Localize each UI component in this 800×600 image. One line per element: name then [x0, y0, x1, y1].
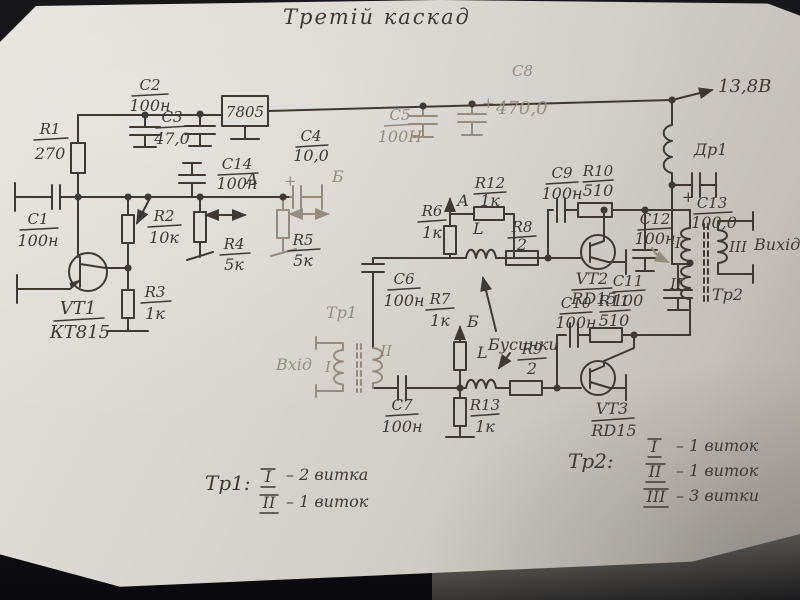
- label-r12: R12 1к: [474, 174, 506, 210]
- r5-ref: R5: [292, 231, 314, 249]
- legend-tr1: Тр1: I – 2 витка II – 1 виток: [205, 465, 369, 513]
- tr2-winding1-label: I: [674, 234, 682, 252]
- point-a-label-r4: А: [245, 169, 258, 188]
- c8-value: 470,0: [495, 98, 548, 119]
- resistor-r3: [108, 268, 148, 331]
- legend-tr1-row1-winding: I: [264, 467, 272, 486]
- transistor-vt2: [590, 210, 626, 274]
- legend-tr1-title: Тр1:: [205, 471, 251, 495]
- legend-tr1-row2-turns: – 1 виток: [286, 492, 369, 511]
- capacitor-c14: [179, 163, 205, 197]
- tr1-winding2-label: II: [379, 342, 393, 360]
- c8-plus-sign: +: [482, 94, 495, 112]
- r13-value: 1к: [475, 417, 495, 436]
- potentiometer-r2: [122, 197, 134, 268]
- label-r7: R7 1к: [426, 290, 454, 330]
- legend-tr2: Тр2: I – 1 виток II – 1 виток III – 3 ви…: [568, 436, 759, 507]
- schematic-title: Третій каскад: [283, 5, 471, 29]
- legend-tr2-row2-winding: II: [648, 462, 662, 481]
- label-c12: C12 100н: [634, 210, 675, 248]
- c8-ref: C8: [512, 62, 533, 80]
- label-c4: C4 10,0: [293, 127, 329, 165]
- label-c13: C13 100,0: [691, 194, 737, 232]
- r4-value: 5к: [224, 255, 244, 274]
- r2-value: 10к: [149, 228, 179, 247]
- label-c5: C5 100Н: [378, 106, 424, 146]
- c9-value: 100н: [541, 184, 582, 203]
- r13-ref: R13: [469, 396, 500, 414]
- regulator-7805-label: 7805: [226, 103, 264, 121]
- c2-ref: C2: [139, 76, 160, 94]
- beads-callout-arrow-lower: [499, 353, 510, 368]
- capacitor-c1: [15, 183, 78, 211]
- c6-ref: C6: [393, 270, 414, 288]
- resistor-r7: [454, 342, 466, 388]
- output-label: Вихід: [753, 235, 800, 254]
- r3-ref: R3: [144, 283, 166, 301]
- potentiometer-r4: [187, 197, 213, 260]
- r6-ref: R6: [421, 202, 443, 220]
- legend-tr2-row1-turns: – 1 виток: [676, 436, 759, 455]
- c5-ref: C5: [389, 106, 410, 124]
- label-c9: C9 100н: [541, 164, 582, 203]
- label-r13: R13 1к: [469, 396, 500, 436]
- legend-tr1-row1-turns: – 2 витка: [286, 465, 368, 484]
- c10-value: 100н: [555, 313, 596, 332]
- c3-value: 47,0: [153, 129, 190, 148]
- beads-callout-arrow-upper: [483, 278, 496, 331]
- label-c7: C7 100н: [381, 396, 422, 436]
- label-r8: R8 2: [508, 218, 536, 254]
- capacitor-c6: [362, 258, 384, 272]
- potentiometer-r2-wiper-arrow: [137, 200, 149, 223]
- r8-value: 2: [516, 235, 527, 254]
- paper-sheet: 7805 13,8В Др1: [0, 0, 800, 600]
- label-vt3: VT3 RD15: [590, 399, 636, 440]
- choke-dr1-label: Др1: [693, 140, 727, 159]
- label-vt1: VT1 КТ815: [49, 298, 110, 343]
- tr1-winding1-label: I: [324, 358, 332, 376]
- legend-tr2-row3-turns: – 3 витки: [676, 486, 759, 505]
- supply-voltage-label: 13,8В: [718, 76, 771, 97]
- c4-plus-sign: +: [284, 172, 297, 190]
- label-r11: R11 510: [598, 292, 630, 330]
- r9-value: 2: [526, 359, 537, 378]
- label-r4: R4 5к: [220, 235, 250, 274]
- ferrite-bead-lower: [466, 380, 496, 388]
- c12-value: 100н: [634, 229, 675, 248]
- c4-ref: C4: [300, 127, 321, 145]
- c7-value: 100н: [381, 417, 422, 436]
- r8-ref: R8: [511, 218, 533, 236]
- bead-l-label-upper: L: [472, 219, 484, 238]
- legend-tr2-row3-winding: III: [646, 487, 667, 506]
- supply-arrow: [672, 90, 712, 100]
- resistor-r1: [71, 115, 85, 197]
- transformer-tr1-core: [357, 344, 361, 392]
- c13-value: 100,0: [691, 213, 737, 232]
- r2-ref: R2: [153, 207, 175, 225]
- tr2-winding3-label: III: [728, 238, 748, 256]
- point-a-label-r6: А: [456, 191, 469, 210]
- c4-value: 10,0: [293, 146, 329, 165]
- c9-ref: C9: [551, 164, 572, 182]
- capacitor-c12-pointer-arrow: [652, 248, 668, 262]
- vt2-ref: VT2: [576, 269, 608, 288]
- r10-value: 510: [583, 181, 614, 200]
- point-b-label-r7: Б: [466, 312, 479, 331]
- label-r1: R1 270: [34, 120, 68, 163]
- vt1-ref: VT1: [60, 298, 96, 319]
- r5-value: 5к: [293, 251, 313, 270]
- beads-label: Бусинки: [487, 335, 559, 354]
- c10-ref: C10: [561, 294, 592, 312]
- r3-value: 1к: [145, 304, 165, 323]
- choke-dr1: [664, 100, 672, 185]
- r4-ref: R4: [223, 235, 245, 253]
- label-r5: R5 5к: [288, 231, 320, 270]
- tr2-winding2-label: II: [669, 275, 683, 293]
- legend-tr2-row2-turns: – 1 виток: [676, 461, 759, 480]
- label-c1: C1 100н: [17, 210, 58, 250]
- label-r10: R10 510: [582, 162, 614, 200]
- c13-ref: C13: [697, 194, 728, 212]
- c1-value: 100н: [17, 231, 58, 250]
- ferrite-bead-upper: [466, 250, 496, 258]
- legend-tr1-row2-winding: II: [262, 493, 276, 512]
- r10-ref: R10: [582, 162, 614, 180]
- point-b-label-r5: Б: [331, 167, 344, 186]
- vt3-ref: VT3: [596, 399, 628, 418]
- r12-ref: R12: [474, 174, 505, 192]
- photo-of-schematic: 7805 13,8В Др1: [0, 0, 800, 600]
- r1-value: 270: [34, 144, 66, 163]
- legend-tr2-title: Тр2:: [568, 449, 614, 473]
- c6-value: 100н: [383, 291, 424, 310]
- vt1-value: КТ815: [49, 322, 110, 343]
- r11-ref: R11: [598, 292, 629, 310]
- circuit-schematic: 7805 13,8В Др1: [0, 0, 800, 600]
- r1-ref: R1: [39, 120, 61, 138]
- r6-value: 1к: [422, 223, 442, 242]
- c7-ref: C7: [391, 396, 412, 414]
- input-label: Вхід: [275, 355, 312, 374]
- c12-ref: C12: [640, 210, 671, 228]
- c3-ref: C3: [161, 108, 182, 126]
- label-c6: C6 100н: [383, 270, 424, 310]
- transistor-vt2-body: [581, 235, 615, 269]
- vt3-value: RD15: [590, 421, 636, 440]
- r11-value: 510: [599, 311, 630, 330]
- label-r6: R6 1к: [418, 202, 446, 242]
- c13-plus-sign: +: [682, 188, 695, 206]
- bead-l-label-lower: L: [476, 343, 488, 362]
- c11-ref: C11: [613, 272, 644, 290]
- r7-ref: R7: [429, 290, 451, 308]
- label-r2: R2 10к: [148, 207, 181, 247]
- label-c10: C10 100н: [555, 294, 596, 332]
- r12-value: 1к: [480, 191, 500, 210]
- transformer-tr2-core: [704, 224, 708, 302]
- c5-value: 100Н: [378, 127, 424, 146]
- resistor-r9: [510, 381, 542, 395]
- c1-ref: C1: [27, 210, 48, 228]
- tr1-name-label: Тр1: [326, 303, 357, 322]
- tr2-name-label: Тр2: [712, 285, 743, 304]
- legend-tr2-row1-winding: I: [650, 437, 658, 456]
- transistor-vt3-body: [581, 361, 615, 395]
- label-r3: R3 1к: [141, 283, 171, 323]
- r7-value: 1к: [430, 311, 450, 330]
